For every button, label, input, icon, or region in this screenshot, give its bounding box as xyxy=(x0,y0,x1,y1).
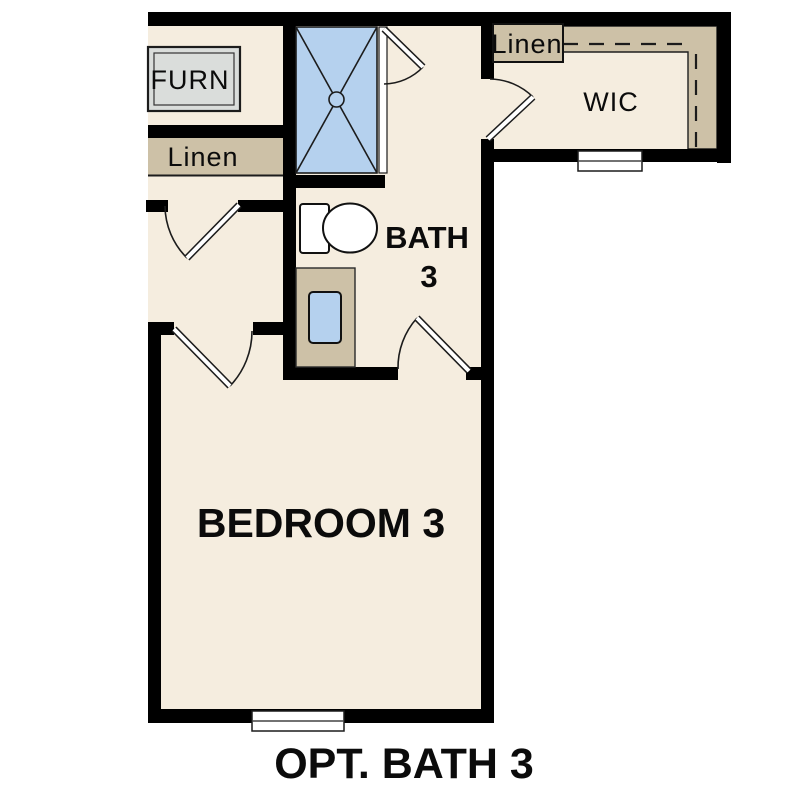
wic-window xyxy=(578,151,642,171)
bedroom-label: BEDROOM 3 xyxy=(197,500,445,546)
wall-wic-right xyxy=(717,12,731,163)
wic-linen-label: Linen xyxy=(491,29,562,59)
wall-hall-door-stub-right xyxy=(238,200,296,212)
floor-plan: FURN Linen Linen WIC BATH 3 BEDROOM 3 OP… xyxy=(0,0,810,810)
bedroom-window xyxy=(252,711,344,731)
bath-vanity xyxy=(296,268,355,367)
floor-area xyxy=(148,12,731,723)
wall-top xyxy=(148,12,731,26)
wall-bedroom-left xyxy=(148,322,161,723)
shower-glass-panel xyxy=(379,27,387,173)
toilet xyxy=(300,204,377,254)
toilet-bowl xyxy=(323,204,377,253)
wall-right-main xyxy=(481,139,494,723)
vanity-sink xyxy=(309,292,341,343)
furnace-label: FURN xyxy=(151,65,230,95)
hall-linen-label: Linen xyxy=(167,142,238,172)
wic-label: WIC xyxy=(583,87,638,117)
plan-caption: OPT. BATH 3 xyxy=(274,740,534,788)
wall-furn-bottom xyxy=(148,125,296,138)
bath-label-line1: BATH xyxy=(385,220,469,255)
wall-bedroom-door-stub-right xyxy=(253,322,296,335)
wall-bath-bottom xyxy=(283,367,398,380)
wall-shower-bottom xyxy=(283,175,385,188)
bath-label-line2: 3 xyxy=(420,259,437,294)
shower-drain-icon xyxy=(329,92,344,107)
